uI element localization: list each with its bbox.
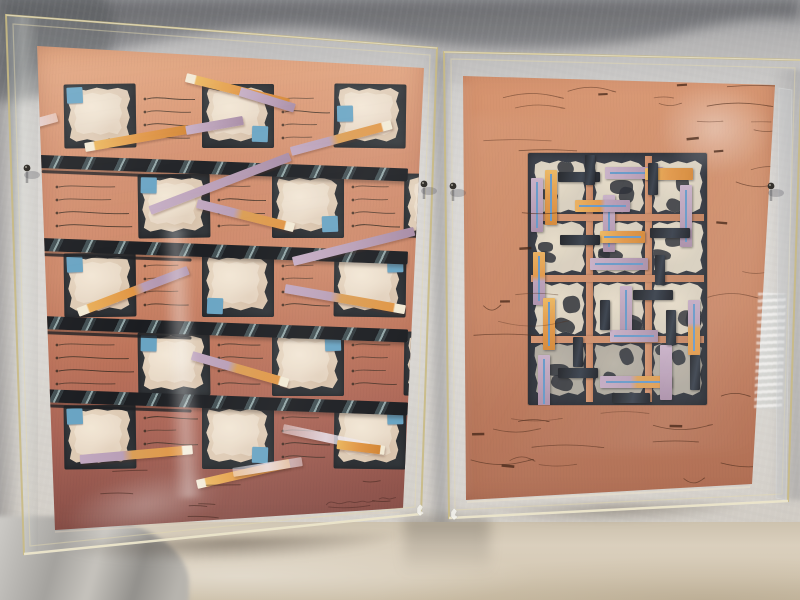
left-frame-outer-edge xyxy=(6,15,437,554)
pen-scribble xyxy=(659,103,682,105)
screw-glint xyxy=(422,182,424,184)
left-frame-top-highlight xyxy=(6,15,437,48)
frame-screw xyxy=(421,181,437,199)
left-frame-bottom-highlight xyxy=(24,514,421,554)
ink-mark xyxy=(112,470,147,471)
photo-of-framed-artworks xyxy=(0,0,800,600)
right-frame-bottom-highlight xyxy=(449,501,788,518)
pen-scribble xyxy=(653,425,713,430)
ink-mark xyxy=(189,506,207,507)
pen-scribble xyxy=(510,457,535,461)
pen-scribble xyxy=(727,86,789,87)
pen-scribble xyxy=(721,393,750,396)
screw-glint xyxy=(769,184,771,186)
frame-screw xyxy=(450,183,466,201)
screw-head xyxy=(768,183,775,190)
artist-signature xyxy=(326,497,396,508)
pen-scribble xyxy=(498,321,569,326)
pen-scribble xyxy=(742,271,770,273)
right-frame-top-highlight xyxy=(444,52,800,60)
pen-scribble xyxy=(493,429,540,432)
pen-scribble xyxy=(708,294,758,298)
frame-edges-overlay xyxy=(0,0,800,600)
ink-dash xyxy=(687,138,699,139)
ink-dash xyxy=(502,466,515,467)
ink-mark xyxy=(206,485,241,486)
screw-glint xyxy=(25,166,27,168)
pen-scribble xyxy=(697,121,723,122)
pen-scribble xyxy=(519,150,577,151)
pen-scribble xyxy=(653,441,699,442)
pen-scribble xyxy=(707,103,773,107)
pen-scribble xyxy=(483,305,501,310)
screw-head xyxy=(450,183,457,190)
pen-scribble xyxy=(601,412,649,414)
pen-scribble xyxy=(754,129,781,131)
pen-scribble xyxy=(568,87,616,92)
ink-mark xyxy=(100,493,133,494)
ink-mark xyxy=(363,481,381,482)
pen-scribble xyxy=(471,459,534,464)
pen-scribble xyxy=(758,374,776,379)
screw-head xyxy=(421,181,428,188)
pen-scribble xyxy=(483,140,551,141)
pen-scribble xyxy=(736,181,784,186)
pen-scribble xyxy=(515,293,558,295)
paper-edge-highlight xyxy=(467,487,750,502)
frame-screw xyxy=(24,165,40,183)
right-frame-inner-edge xyxy=(451,59,795,510)
screw-head xyxy=(24,165,31,172)
pen-scribble xyxy=(532,445,604,448)
ink-mark xyxy=(198,504,215,505)
pen-scribble xyxy=(474,334,536,335)
ink-mark xyxy=(188,516,219,518)
pen-scribble xyxy=(654,97,674,98)
pen-scribble xyxy=(515,105,565,108)
screw-glint xyxy=(451,184,453,186)
pen-scribble xyxy=(522,213,560,214)
ink-dash xyxy=(677,85,687,86)
ink-dash xyxy=(714,151,723,152)
ink-dash xyxy=(716,222,727,223)
right-paper-scribbles xyxy=(471,85,791,483)
pen-scribble xyxy=(721,462,779,466)
pen-scribble xyxy=(539,464,577,466)
ink-dash xyxy=(519,248,531,249)
pen-scribble xyxy=(503,93,564,98)
right-frame-outer-edge xyxy=(444,52,800,518)
paint-chip xyxy=(417,504,424,516)
pen-scribble xyxy=(684,478,705,483)
left-paper-marks xyxy=(100,470,396,518)
left-frame-inner-edge xyxy=(13,24,430,546)
